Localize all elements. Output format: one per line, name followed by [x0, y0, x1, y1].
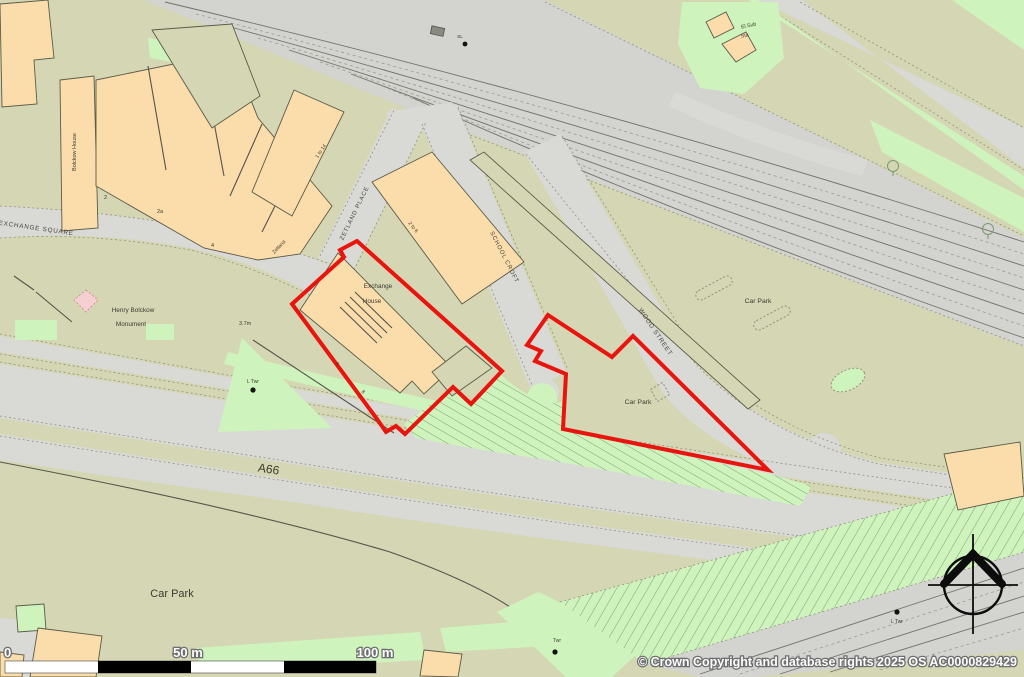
label-car-park-sw: Car Park [150, 588, 194, 600]
label-exchange-house-1: Exchange [364, 283, 393, 290]
label-no-2: 2 [104, 195, 107, 201]
label-car-park-site: Car Park [625, 399, 652, 406]
building-bolckow-house [60, 76, 98, 231]
label-l-twr-west: L Twr [247, 379, 259, 385]
label-monument-2: Monument [116, 321, 146, 328]
scale-mid: 50 m [173, 645, 203, 660]
label-l-twr-east: L Twr [891, 619, 903, 625]
label-no-2a: 2a [157, 209, 164, 215]
label-sl: SL [457, 34, 463, 40]
label-no-4: 4 [211, 243, 214, 249]
lighting-tower-dot [894, 609, 899, 614]
copyright-notice: © Crown Copyright and database rights 20… [638, 655, 1017, 669]
label-twr: Twr [553, 638, 561, 644]
scale-zero: 0 [4, 645, 11, 660]
label-spot-height: 3.7m [239, 321, 252, 327]
lighting-tower-dot [250, 387, 255, 392]
label-bolckow-house: Bolckow House [72, 133, 78, 171]
map-canvas: EXCHANGE SQUARE ZETLAND PLACE SCHOOL CRO… [0, 0, 1024, 677]
scale-end: 100 m [357, 645, 394, 660]
label-car-park-ne: Car Park [745, 298, 772, 305]
tower-dot [552, 649, 557, 654]
os-map-extract: EXCHANGE SQUARE ZETLAND PLACE SCHOOL CRO… [0, 0, 1024, 677]
signal-dot [463, 42, 468, 47]
label-exchange-house-2: House [363, 298, 382, 305]
label-monument-1: Henry Bolckow [112, 307, 155, 314]
